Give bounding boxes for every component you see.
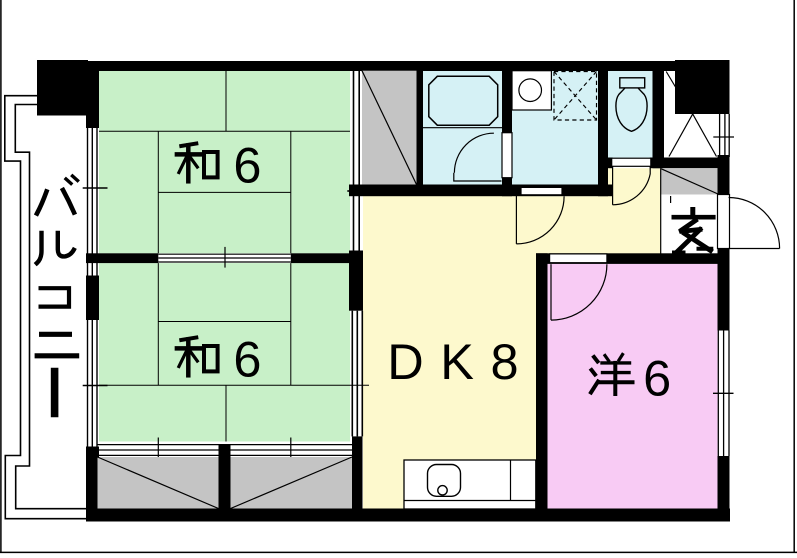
svg-text:6: 6 xyxy=(233,330,261,387)
svg-text:6: 6 xyxy=(643,350,671,407)
svg-text:6: 6 xyxy=(233,136,261,193)
svg-text:DK8: DK8 xyxy=(387,333,535,390)
